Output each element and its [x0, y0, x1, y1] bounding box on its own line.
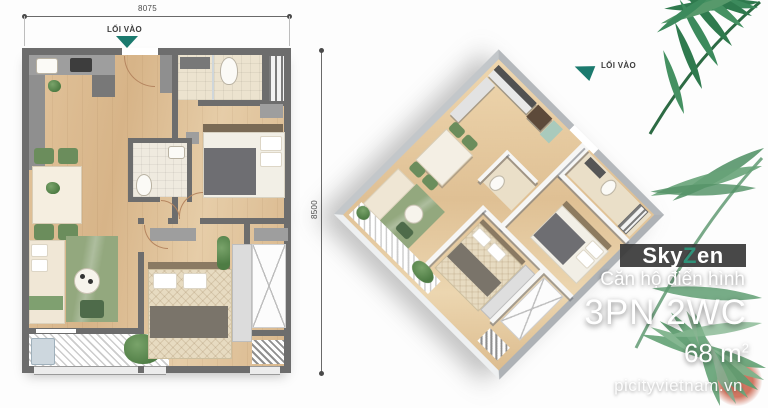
shower-glass — [212, 55, 214, 100]
marketing-poster: 8075 LỐI VÀO 8500 — [0, 0, 768, 408]
coffee-table — [74, 268, 100, 294]
dimension-extension-line — [289, 16, 290, 46]
pillow — [31, 259, 48, 272]
dining-table — [32, 166, 82, 224]
brand-name-accent: Z — [683, 246, 697, 266]
toilet — [136, 174, 152, 196]
website-url: picityvietnam.vn — [614, 376, 743, 396]
void-shaft — [252, 244, 286, 328]
desk — [254, 228, 288, 241]
wall-inner — [128, 197, 160, 202]
closet-hatched — [268, 55, 285, 102]
wall-west — [22, 48, 29, 373]
dimension-tick — [319, 371, 324, 376]
tagline: Căn hộ điển hình — [600, 269, 745, 291]
dimension-width-line — [24, 16, 290, 17]
brand-name-post: en — [697, 246, 724, 266]
cup — [88, 279, 93, 284]
bed-throw — [150, 306, 228, 338]
plant — [217, 236, 230, 270]
ac-ledge-grill — [252, 340, 284, 364]
washing-machine — [31, 338, 55, 365]
pillow — [31, 244, 48, 257]
armchair — [80, 300, 104, 318]
bathroom-vanity — [180, 57, 210, 69]
kitchen-cabinets-3d — [450, 77, 495, 122]
pillow — [153, 273, 177, 289]
wall-inner — [187, 138, 192, 202]
cooktop — [70, 58, 92, 72]
dimension-height-line — [321, 50, 322, 373]
toilet — [220, 57, 238, 85]
pillow — [183, 273, 207, 289]
shoe-cabinet — [160, 55, 172, 93]
wardrobe — [232, 244, 252, 342]
entrance-door-opening — [122, 48, 158, 55]
dimension-width-label: 8075 — [138, 4, 157, 13]
dimension-height-label: 8500 — [310, 200, 319, 219]
cup — [80, 274, 85, 279]
desk — [260, 104, 283, 118]
window — [250, 366, 280, 375]
area-exponent: 2 — [742, 340, 749, 355]
dimension-extension-line — [24, 16, 25, 46]
table-centerpiece — [46, 182, 60, 194]
pillow — [260, 152, 282, 167]
brand-banner: SkyZen — [620, 244, 746, 267]
sink — [168, 146, 185, 159]
unit-area: 68 m2 — [684, 338, 749, 369]
unit-type: 3PN 2WC — [584, 293, 747, 333]
ac-ledge-3d — [477, 328, 510, 361]
window-opening — [36, 329, 76, 333]
pillow — [260, 136, 282, 151]
area-value: 68 m — [684, 338, 742, 368]
floor-plan-2d — [22, 48, 291, 373]
wall-inner — [138, 218, 144, 224]
brand-name-pre: Sky — [642, 246, 683, 266]
entrance-label-2d: LỐI VÀO — [107, 25, 142, 34]
dimension-tick — [319, 48, 324, 53]
dining-chair — [58, 148, 78, 164]
bed-blanket — [204, 148, 256, 195]
dining-chair — [34, 224, 54, 240]
dining-chair — [34, 148, 54, 164]
entrance-arrow-icon-2d — [116, 36, 138, 48]
green-throw — [29, 296, 63, 310]
plant — [48, 80, 61, 92]
kitchen-sink — [36, 58, 58, 74]
bed-headboard — [203, 124, 283, 132]
fridge — [92, 75, 115, 97]
balcony-window — [34, 366, 166, 375]
